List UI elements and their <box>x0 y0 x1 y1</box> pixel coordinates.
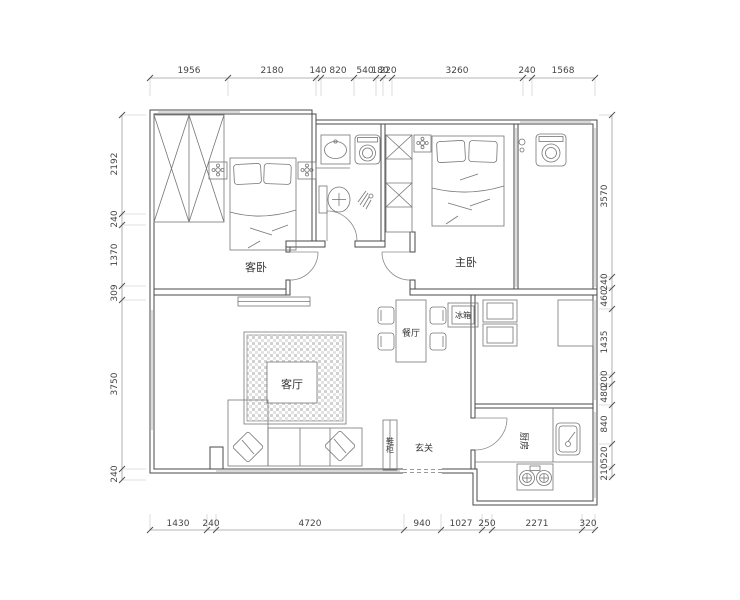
svg-text:240: 240 <box>600 273 610 290</box>
svg-text:4720: 4720 <box>299 519 322 529</box>
kitchen-sink <box>556 423 580 455</box>
svg-text:210: 210 <box>600 463 610 480</box>
entry-opening <box>403 467 442 475</box>
svg-text:840: 840 <box>600 415 610 432</box>
svg-text:480: 480 <box>600 385 610 402</box>
dimension-bottom: 1430 240 4720 940 1027 250 2271 320 <box>147 514 598 533</box>
svg-text:309: 309 <box>110 284 120 301</box>
shower-head <box>358 191 373 209</box>
master-nightstand <box>414 135 431 152</box>
master-wardrobe <box>386 135 412 232</box>
guest-bedroom-label: 客卧 <box>245 260 267 274</box>
fridge-label: 冰箱 <box>455 310 471 320</box>
master-bedroom-label: 主卧 <box>455 256 477 269</box>
svg-text:240: 240 <box>518 66 535 76</box>
svg-text:1370: 1370 <box>110 243 120 266</box>
toilet <box>319 186 350 213</box>
living-room-label: 客厅 <box>281 377 303 391</box>
svg-text:1430: 1430 <box>167 519 190 529</box>
kitchen-cabinets <box>483 300 593 346</box>
svg-text:460: 460 <box>600 289 610 306</box>
shoe-cabinet-label: 鞋柜 <box>386 436 395 454</box>
svg-text:1027: 1027 <box>450 519 473 529</box>
guest-bed <box>230 158 296 250</box>
kitchen-counter <box>475 408 593 462</box>
svg-text:220: 220 <box>379 66 396 76</box>
dimension-left: 2192 240 1370 309 3750 240 <box>110 112 146 483</box>
svg-text:1956: 1956 <box>178 66 201 76</box>
svg-text:1435: 1435 <box>600 331 610 354</box>
dimension-top: 1956 2180 140 820 540 180 220 3260 240 1… <box>147 66 598 96</box>
washing-machine-bath <box>355 135 380 164</box>
svg-text:320: 320 <box>579 519 596 529</box>
kitchen-door <box>475 418 507 450</box>
svg-text:240: 240 <box>110 465 120 482</box>
dimension-right: 3570 240 460 1435 200 480 840 520 210 <box>599 112 615 481</box>
svg-text:2271: 2271 <box>526 519 549 529</box>
svg-text:2180: 2180 <box>261 66 284 76</box>
svg-text:3750: 3750 <box>110 372 120 395</box>
svg-text:3260: 3260 <box>446 66 469 76</box>
tv-stand <box>238 297 310 306</box>
svg-text:140: 140 <box>309 66 326 76</box>
svg-text:3570: 3570 <box>600 184 610 207</box>
svg-text:1568: 1568 <box>552 66 575 76</box>
floor-plan-canvas: 客卧 主卧 餐厅 客厅 玄关 厨房 冰箱 鞋柜 1956 2180 140 82… <box>0 0 740 600</box>
foyer-label: 玄关 <box>415 442 433 454</box>
kitchen-label: 厨房 <box>518 432 530 450</box>
washing-machine-balcony <box>519 134 566 166</box>
bathroom-door <box>327 211 357 241</box>
svg-text:2192: 2192 <box>110 153 120 176</box>
svg-text:250: 250 <box>478 519 495 529</box>
dining-room-label: 餐厅 <box>402 327 420 339</box>
floor-plan-page: 客卧 主卧 餐厅 客厅 玄关 厨房 冰箱 鞋柜 1956 2180 140 82… <box>0 0 740 600</box>
svg-text:200: 200 <box>600 370 610 387</box>
master-bed <box>432 136 504 226</box>
guest-bedroom-door <box>290 252 318 280</box>
svg-text:240: 240 <box>202 519 219 529</box>
stove <box>517 464 553 490</box>
exterior-walls <box>150 110 597 505</box>
interior-walls <box>154 114 597 469</box>
wall-pier <box>210 447 223 469</box>
svg-text:240: 240 <box>110 210 120 227</box>
master-bedroom-door <box>382 252 410 280</box>
washbasin <box>316 135 350 168</box>
svg-text:820: 820 <box>329 66 346 76</box>
svg-text:940: 940 <box>413 519 430 529</box>
svg-text:520: 520 <box>600 446 610 463</box>
